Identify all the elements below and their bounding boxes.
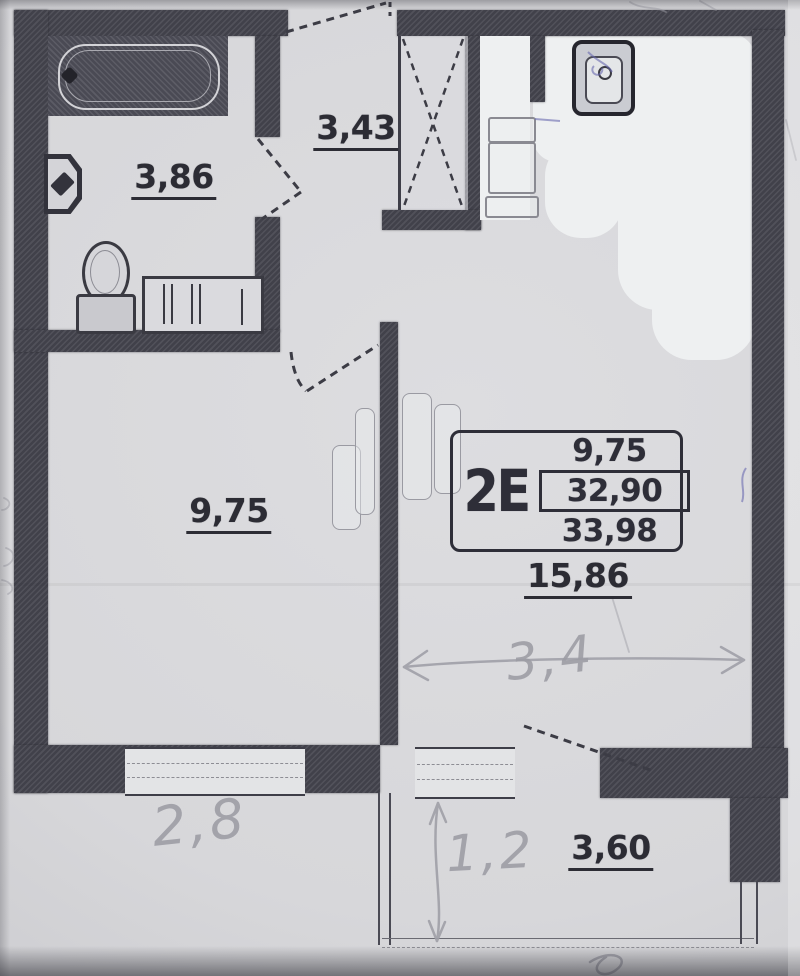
stove-cabinet-base <box>485 196 539 218</box>
washer-line <box>163 284 165 324</box>
kitchen-sink-faucet-icon <box>598 66 612 80</box>
washer-line <box>171 284 173 324</box>
blue-pen-mark <box>742 468 746 502</box>
unit-info-box: 2E 9,75 32,90 33,98 <box>450 430 683 552</box>
washer-line <box>199 284 201 324</box>
floor-plan-scan: 3,86 3,43 9,75 15,86 3,60 2E 9,75 32,90 … <box>0 0 800 976</box>
wall-bathroom-right-upper <box>255 36 280 137</box>
wall-middle-vertical <box>380 322 398 745</box>
scan-edge-left <box>0 0 10 976</box>
room-label-balcony: 3,60 <box>568 831 653 871</box>
wall-bottom-right <box>600 748 788 798</box>
room-label-kitchen-living: 15,86 <box>524 559 632 599</box>
pencil-stroke <box>2 498 9 510</box>
wall-hall-living-divider <box>382 210 481 230</box>
washer-line <box>241 289 243 325</box>
balcony-left-glazing <box>378 793 391 945</box>
wall-top-left <box>14 10 288 36</box>
bathroom-door-leaf <box>258 139 301 192</box>
pencil-squiggle-bottom <box>590 955 622 974</box>
pencil-arrow-vertical <box>435 803 439 941</box>
handwritten-living-width: 3,4 <box>503 628 597 688</box>
pencil-arrowhead <box>404 651 428 680</box>
bathtub-basin <box>65 50 211 102</box>
handwritten-balcony-depth: 1,2 <box>445 825 536 880</box>
wardrobe-panel <box>355 408 375 515</box>
wall-top-right <box>397 10 785 36</box>
pencil-arrowhead <box>430 803 446 824</box>
stove-cabinet-oven <box>488 142 536 194</box>
pencil-stroke <box>612 597 629 652</box>
toilet-tank <box>76 294 136 334</box>
bathtub <box>48 36 228 116</box>
scan-edge-top <box>0 0 800 10</box>
room-label-hallway: 3,43 <box>313 111 398 151</box>
scan-edge-right <box>788 0 800 976</box>
pencil-stroke <box>4 548 13 566</box>
paper-crease <box>0 583 800 586</box>
room-door-swing <box>291 352 306 391</box>
wall-left <box>14 10 48 793</box>
room-door-leaf <box>307 345 378 391</box>
pencil-arrowhead <box>721 647 744 673</box>
pencil-stroke <box>786 120 796 160</box>
bathroom-door-swing <box>262 192 301 219</box>
whiteout-blob <box>545 140 623 238</box>
unit-living-area: 9,75 <box>539 433 680 470</box>
pencil-stroke <box>2 580 12 594</box>
wall-balcony-right-pier <box>730 798 780 882</box>
stove-cabinet-top <box>488 117 536 143</box>
kitchen-sink <box>572 40 635 116</box>
wall-right <box>752 30 784 748</box>
room-label-room: 9,75 <box>186 494 271 534</box>
room-label-bathroom: 3,86 <box>131 160 216 200</box>
scan-edge-bottom <box>0 946 800 976</box>
kitchen-sink-bowl <box>585 56 623 104</box>
pencil-stroke <box>700 1 716 10</box>
handwritten-room-width: 2,8 <box>149 791 249 855</box>
built-in-closet <box>398 36 468 210</box>
balcony-window <box>415 747 515 799</box>
wash-basin <box>44 154 82 214</box>
balcony-front-glazing <box>382 938 754 948</box>
unit-total-area: 33,98 <box>539 512 680 549</box>
unit-code: 2E <box>458 433 534 549</box>
toilet-bowl-inner <box>90 250 120 294</box>
washer-line <box>191 284 193 324</box>
unit-areas: 9,75 32,90 33,98 <box>539 433 680 549</box>
whiteout-blob <box>652 40 756 360</box>
wardrobe-panel <box>402 393 432 500</box>
washing-machine <box>142 276 264 334</box>
unit-area-no-balcony: 32,90 <box>539 470 690 513</box>
entrance-door-swing <box>286 3 386 32</box>
balcony-right-glazing <box>740 882 758 944</box>
wall-kitchen-stub <box>530 36 545 102</box>
